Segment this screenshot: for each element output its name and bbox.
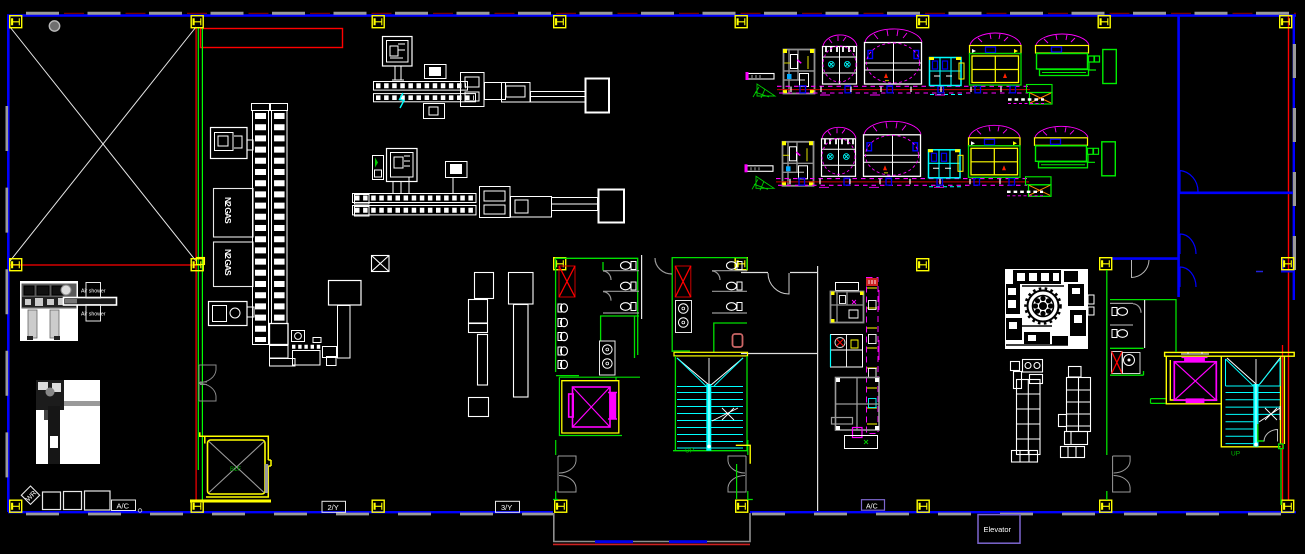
svg-text:3/Y: 3/Y [501, 503, 512, 512]
svg-text:B1F: B1F [230, 467, 241, 473]
svg-text:A/C: A/C [117, 502, 130, 511]
svg-text:2/Y: 2/Y [328, 503, 339, 512]
svg-text:Elevator: Elevator [984, 525, 1012, 534]
svg-text:A/C: A/C [866, 503, 878, 510]
svg-text:UP: UP [685, 448, 694, 455]
svg-text:Air shower: Air shower [81, 289, 106, 295]
svg-text:N2 GAS: N2 GAS [223, 249, 233, 276]
svg-text:N2 GAS: N2 GAS [223, 197, 233, 224]
svg-text:UP: UP [1231, 451, 1240, 458]
svg-text:Air shower: Air shower [81, 312, 106, 318]
